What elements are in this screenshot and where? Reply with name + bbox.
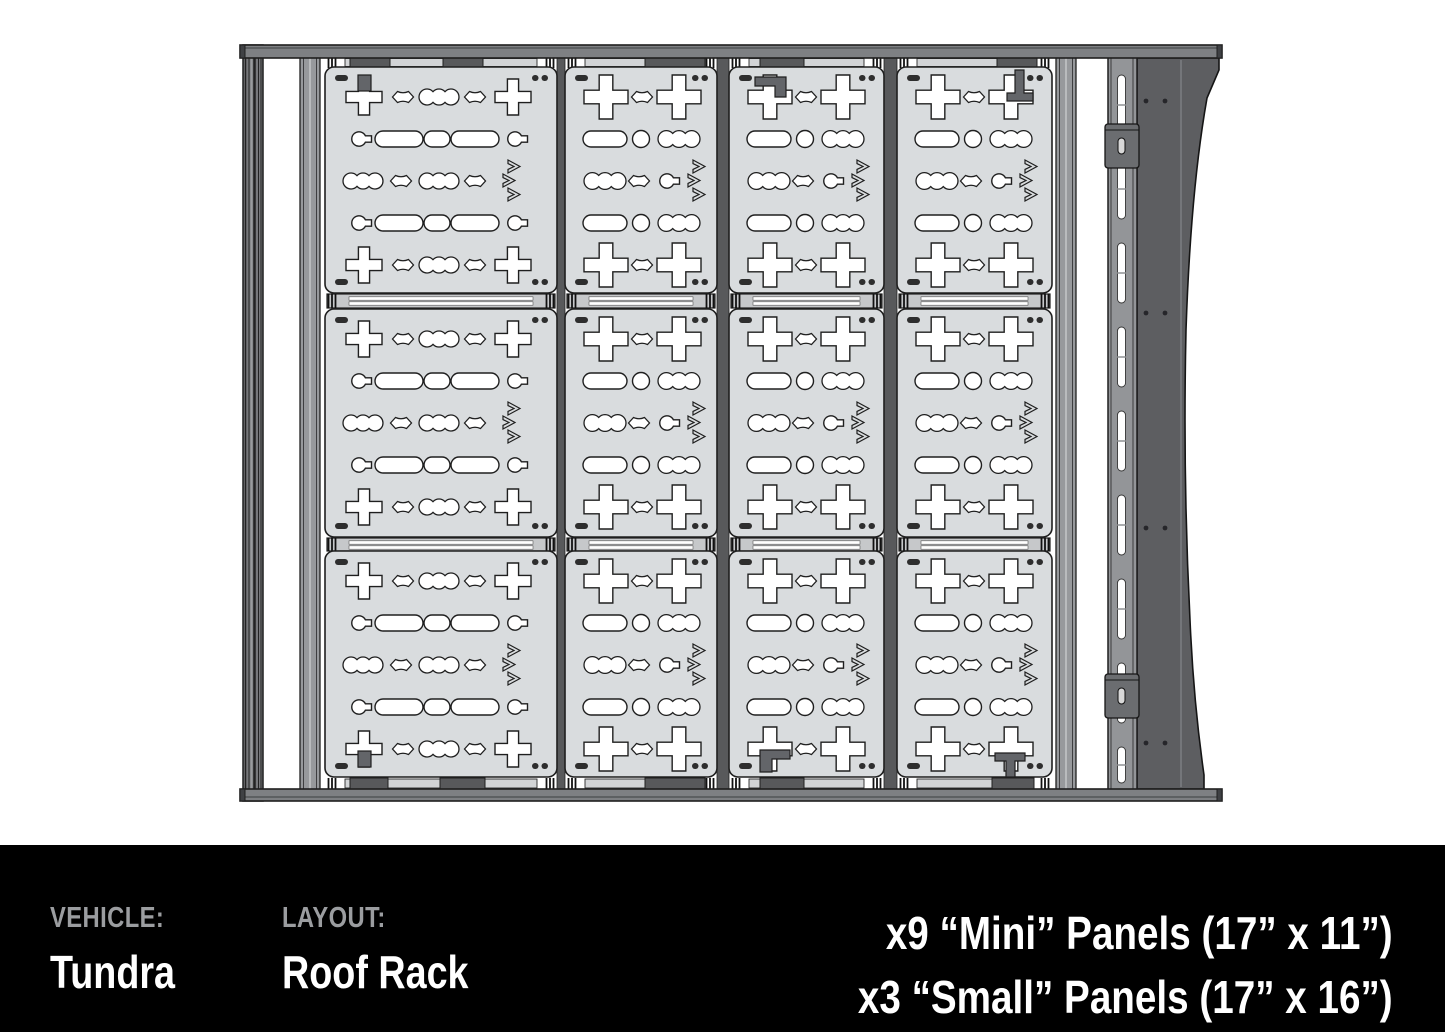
layout-value: Roof Rack: [282, 945, 469, 999]
panel-r1-c1: [325, 67, 557, 293]
mini-panel-count: x9 “Mini” Panels (17” x 11”): [858, 901, 1393, 965]
panel-r2-c4: [897, 309, 1052, 537]
panel-r3-c2: [565, 551, 717, 777]
top-crossmember: [240, 45, 1222, 58]
bottom-crossmember: [240, 789, 1222, 801]
spec-footer: VEHICLE: Tundra LAYOUT: Roof Rack x9 “Mi…: [0, 845, 1445, 1032]
panel-r3-c3: [729, 551, 884, 777]
vehicle-info: VEHICLE: Tundra: [50, 902, 202, 999]
drawing-area: [0, 0, 1445, 845]
panel-r1-c3: [729, 67, 884, 293]
panel-r3-c1: [325, 551, 557, 777]
panel-r1-c2: [565, 67, 717, 293]
panel-r3-c4: [897, 551, 1052, 777]
layout-info: LAYOUT: Roof Rack: [282, 902, 509, 999]
left-side-rail: [243, 45, 263, 801]
panel-grid: [325, 67, 1052, 777]
panel-r2-c3: [729, 309, 884, 537]
layout-label: LAYOUT:: [282, 902, 469, 935]
panel-r2-c1: [325, 309, 557, 537]
vehicle-label: VEHICLE:: [50, 902, 175, 935]
panel-r2-c2: [565, 309, 717, 537]
side-fairing: [1137, 58, 1219, 789]
vehicle-value: Tundra: [50, 945, 175, 999]
panel-counts: x9 “Mini” Panels (17” x 11”) x3 “Small” …: [756, 901, 1393, 1029]
roof-rack-diagram: [0, 0, 1445, 845]
small-panel-count: x3 “Small” Panels (17” x 16”): [858, 965, 1393, 1029]
